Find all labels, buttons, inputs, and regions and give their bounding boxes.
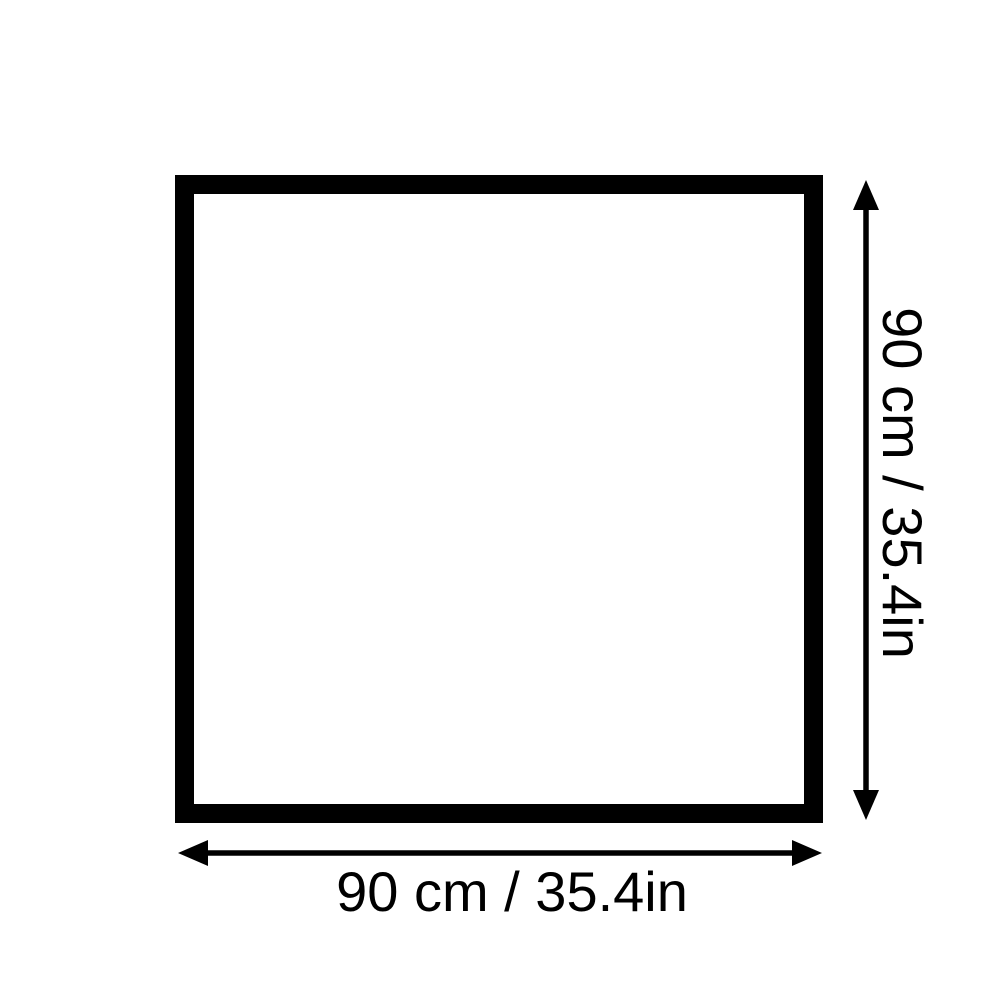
product-outline-square [175, 175, 823, 823]
arrow-right-icon [792, 840, 822, 866]
width-dimension-label: 90 cm / 35.4in [336, 864, 688, 920]
arrow-left-icon [178, 840, 208, 866]
arrow-down-icon [853, 790, 879, 820]
arrow-up-icon [853, 180, 879, 210]
dimension-diagram: 90 cm / 35.4in 90 cm / 35.4in [0, 0, 1000, 1000]
height-dimension-label: 90 cm / 35.4in [874, 307, 930, 659]
